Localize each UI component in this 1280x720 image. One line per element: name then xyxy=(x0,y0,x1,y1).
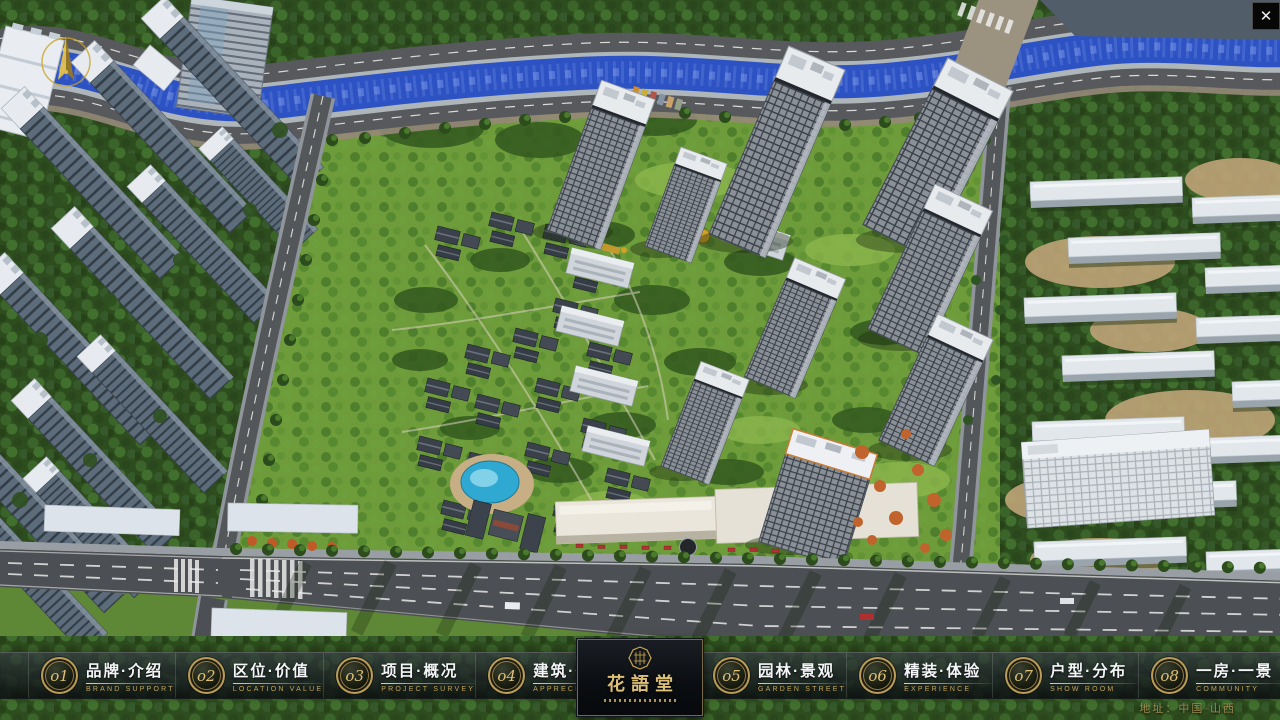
nav-number-badge: o8 xyxy=(1151,657,1188,694)
nav-number-badge: o1 xyxy=(41,657,78,694)
nav-number-badge: o7 xyxy=(1005,657,1042,694)
nav-text: 精装·体验 EXPERIENCE xyxy=(904,659,992,693)
nav-text: 区位·价值 LOCATION VALUE xyxy=(233,659,323,693)
nav-number: o2 xyxy=(197,667,216,685)
nav-number: o1 xyxy=(50,667,69,685)
address-text: 地址：中国·山西 xyxy=(1139,700,1236,716)
brand-logo[interactable]: 花語堂 xyxy=(577,639,703,716)
nav-underline xyxy=(86,683,175,684)
nav-item-experience[interactable]: o6 精装·体验 EXPERIENCE xyxy=(846,653,992,698)
nav-item-project-survey[interactable]: o3 项目·概况 PROJECT SURVEY xyxy=(323,653,475,698)
nav-number-badge: o5 xyxy=(713,657,750,694)
nav-label-zh: 品牌·介绍 xyxy=(86,659,175,681)
nav-label-zh: 户型·分布 xyxy=(1050,659,1138,681)
compass-icon xyxy=(34,30,98,94)
nav-number: o6 xyxy=(868,667,887,685)
nav-group-left: o1 品牌·介绍 BRAND SUPPORT o2 区位·价值 LOCATION… xyxy=(28,653,480,698)
nav-number: o4 xyxy=(497,667,516,685)
nav-number: o5 xyxy=(722,667,741,685)
nav-underline xyxy=(758,683,846,684)
nav-number-badge: o3 xyxy=(336,657,373,694)
nav-number: o7 xyxy=(1014,667,1033,685)
brand-subtitle-rule xyxy=(604,699,676,702)
nav-item-garden-landscape[interactable]: o5 园林·景观 GARDEN STREET xyxy=(700,653,846,698)
nav-label-en: EXPERIENCE xyxy=(904,686,992,693)
nav-label-en: BRAND SUPPORT xyxy=(86,686,175,693)
nav-text: 项目·概况 PROJECT SURVEY xyxy=(381,659,475,693)
nav-number: o8 xyxy=(1160,667,1179,685)
nav-text: 户型·分布 SHOW ROOM xyxy=(1050,659,1138,693)
nav-label-zh: 一房·一景 xyxy=(1196,659,1280,681)
nav-text: 一房·一景 COMMUNITY xyxy=(1196,659,1280,693)
nav-text: 园林·景观 GARDEN STREET xyxy=(758,659,846,693)
nav-underline xyxy=(1050,683,1138,684)
nav-number-badge: o4 xyxy=(488,657,525,694)
nav-number-badge: o2 xyxy=(188,657,225,694)
nav-underline xyxy=(1196,683,1280,684)
nav-label-en: GARDEN STREET xyxy=(758,686,846,693)
nav-text: 品牌·介绍 BRAND SUPPORT xyxy=(86,659,175,693)
bottom-navbar: o1 品牌·介绍 BRAND SUPPORT o2 区位·价值 LOCATION… xyxy=(0,652,1280,699)
nav-item-brand-intro[interactable]: o1 品牌·介绍 BRAND SUPPORT xyxy=(28,653,175,698)
nav-label-en: COMMUNITY xyxy=(1196,686,1280,693)
nav-item-floorplans[interactable]: o7 户型·分布 SHOW ROOM xyxy=(992,653,1138,698)
nav-item-room-view[interactable]: o8 一房·一景 COMMUNITY xyxy=(1138,653,1280,698)
close-button[interactable]: ✕ xyxy=(1252,2,1280,30)
swimming-pool xyxy=(450,454,534,514)
nav-label-zh: 区位·价值 xyxy=(233,659,323,681)
nav-label-zh: 精装·体验 xyxy=(904,659,992,681)
nav-label-en: PROJECT SURVEY xyxy=(381,686,475,693)
brand-seal-icon xyxy=(628,646,652,670)
nav-label-en: SHOW ROOM xyxy=(1050,686,1138,693)
nav-label-en: LOCATION VALUE xyxy=(233,686,323,693)
nav-number-badge: o6 xyxy=(859,657,896,694)
brand-title: 花語堂 xyxy=(601,670,679,696)
aerial-site-render xyxy=(0,0,1280,720)
nav-group-right: o5 园林·景观 GARDEN STREET o6 精装·体验 EXPERIEN… xyxy=(700,653,1156,698)
nav-underline xyxy=(904,683,992,684)
nav-item-location-value[interactable]: o2 区位·价值 LOCATION VALUE xyxy=(175,653,323,698)
nav-label-zh: 项目·概况 xyxy=(381,659,475,681)
presentation-window: ✕ o1 品牌·介绍 BRAND SUPPORT o2 区位·价值 LOCATI… xyxy=(0,0,1280,720)
nav-label-zh: 园林·景观 xyxy=(758,659,846,681)
nav-underline xyxy=(233,683,323,684)
nav-underline xyxy=(381,683,475,684)
nav-number: o3 xyxy=(345,667,364,685)
close-icon: ✕ xyxy=(1260,9,1273,24)
